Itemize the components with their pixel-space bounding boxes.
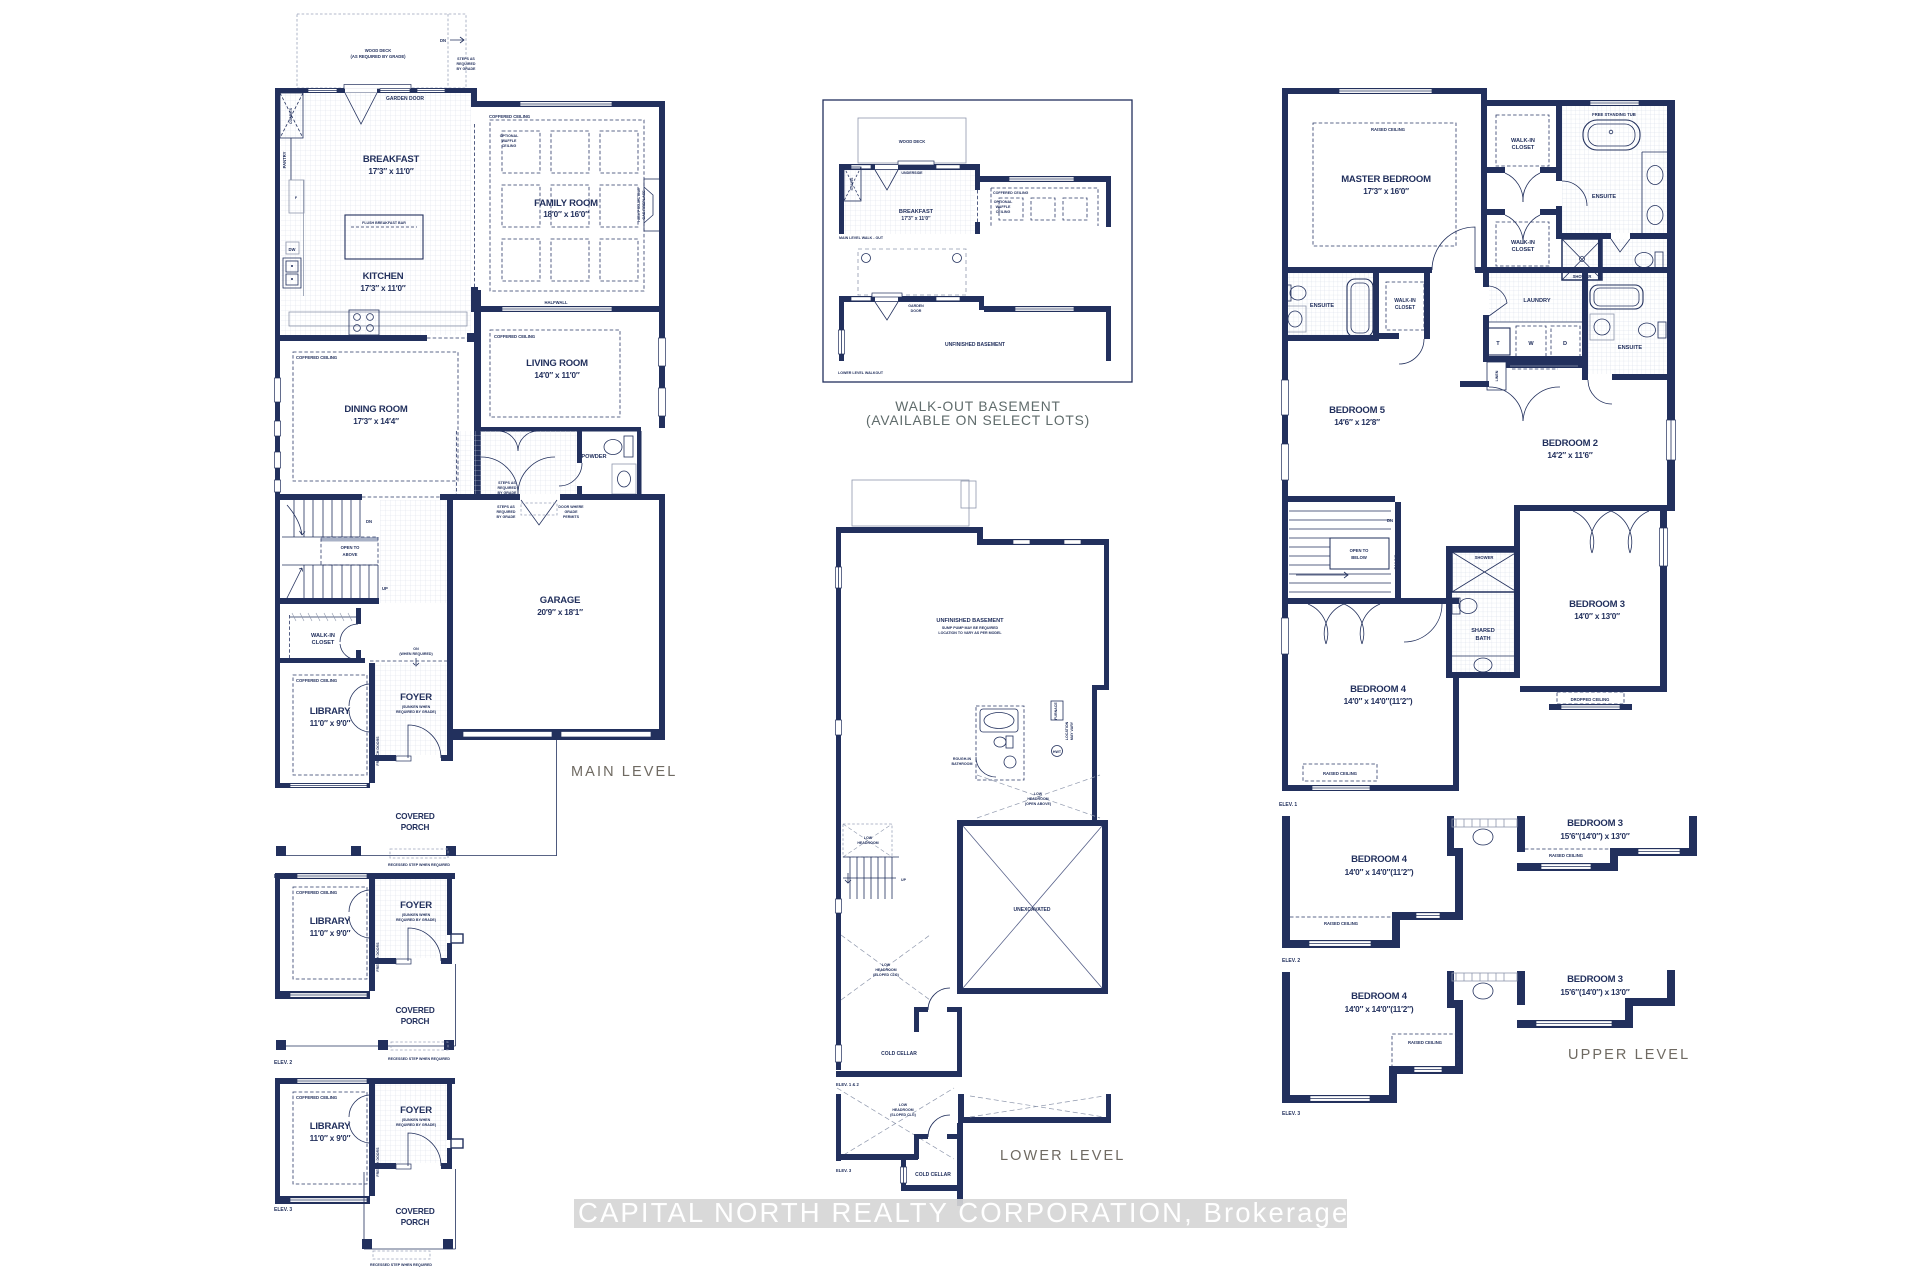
svg-text:GARDEN DOOR: GARDEN DOOR — [386, 96, 424, 102]
svg-text:COLD CELLAR: COLD CELLAR — [915, 1172, 951, 1178]
svg-text:RECESSED STEP WHEN REQUIRED: RECESSED STEP WHEN REQUIRED — [370, 1263, 432, 1267]
svg-text:COLD CELLAR: COLD CELLAR — [881, 1051, 917, 1057]
svg-text:COFFERED CEILING: COFFERED CEILING — [296, 1095, 337, 1100]
svg-text:UP: UP — [901, 878, 907, 882]
svg-text:UNFINISHED BASEMENT: UNFINISHED BASEMENT — [945, 342, 1005, 348]
svg-text:LOW: LOW — [882, 963, 891, 967]
svg-text:ENSUITE: ENSUITE — [1310, 303, 1335, 309]
svg-text:WALK-IN: WALK-IN — [311, 633, 335, 639]
svg-text:RECESSED STEP WHEN REQUIRED: RECESSED STEP WHEN REQUIRED — [388, 1057, 450, 1061]
svg-text:DW: DW — [289, 247, 296, 252]
svg-text:OPTIONAL: OPTIONAL — [500, 134, 519, 138]
svg-text:CLOSET: CLOSET — [1395, 305, 1415, 311]
svg-text:CLOSET: CLOSET — [312, 640, 335, 646]
svg-text:REQUIRED: REQUIRED — [498, 486, 517, 490]
svg-text:REQUIRED BY GRADE): REQUIRED BY GRADE) — [396, 710, 437, 714]
svg-text:PORCH: PORCH — [401, 1218, 430, 1227]
svg-text:(SLOPED CLG): (SLOPED CLG) — [873, 973, 900, 977]
svg-text:(WHEN REQUIRED): (WHEN REQUIRED) — [399, 652, 433, 656]
svg-text:FREE STANDING TUB: FREE STANDING TUB — [1592, 112, 1636, 117]
svg-text:HEADROOM: HEADROOM — [857, 841, 878, 845]
svg-text:BEDROOM 3: BEDROOM 3 — [1567, 818, 1623, 829]
svg-text:WALK-OUT BASEMENT: WALK-OUT BASEMENT — [895, 399, 1060, 414]
svg-text:W: W — [1528, 341, 1534, 347]
svg-text:LOCATION: LOCATION — [1065, 721, 1069, 740]
svg-text:17′3″ x 11′0″: 17′3″ x 11′0″ — [901, 216, 931, 222]
svg-text:15′6″(14′0″) x 13′0″: 15′6″(14′0″) x 13′0″ — [1560, 988, 1629, 997]
svg-text:(OPEN ABOVE): (OPEN ABOVE) — [1025, 802, 1052, 806]
svg-text:FLUSH BREAKFAST BAR: FLUSH BREAKFAST BAR — [362, 221, 406, 225]
svg-text:WOOD DECK: WOOD DECK — [899, 139, 926, 144]
svg-text:HALFWALL: HALFWALL — [544, 300, 567, 305]
svg-text:(AVAILABLE ON SELECT LOTS): (AVAILABLE ON SELECT LOTS) — [866, 413, 1090, 428]
svg-text:WALK-IN: WALK-IN — [1394, 298, 1416, 304]
svg-text:STEPS AS: STEPS AS — [497, 505, 515, 509]
svg-text:GRADE: GRADE — [565, 510, 579, 514]
svg-text:COVERED: COVERED — [395, 1207, 434, 1216]
svg-text:(SUNKEN WHEN: (SUNKEN WHEN — [402, 913, 431, 917]
svg-text:11′0″ x 9′0″: 11′0″ x 9′0″ — [310, 719, 351, 728]
svg-text:(SUNKEN WHEN: (SUNKEN WHEN — [402, 1118, 431, 1122]
svg-text:STEPS AS: STEPS AS — [498, 481, 516, 485]
svg-text:STEPS AS: STEPS AS — [457, 57, 475, 61]
svg-text:WALK-IN: WALK-IN — [1511, 138, 1535, 144]
svg-text:(AS REQUIRED BY GRADE): (AS REQUIRED BY GRADE) — [350, 54, 406, 59]
svg-text:UNFINISHED BASEMENT: UNFINISHED BASEMENT — [936, 618, 1004, 624]
svg-text:FOYER: FOYER — [400, 692, 432, 703]
svg-text:SUMP PUMP MAY BE REQUIRED: SUMP PUMP MAY BE REQUIRED — [942, 626, 999, 630]
svg-text:ELEV. 1 & 2: ELEV. 1 & 2 — [836, 1082, 860, 1087]
svg-text:BEDROOM 5: BEDROOM 5 — [1329, 405, 1386, 416]
svg-text:14′0″ x 14′0″(11′2″): 14′0″ x 14′0″(11′2″) — [1345, 868, 1414, 877]
svg-text:BEDROOM 4: BEDROOM 4 — [1351, 854, 1408, 865]
svg-text:HEADROOM: HEADROOM — [892, 1108, 913, 1112]
svg-text:ELEV. 3: ELEV. 3 — [836, 1168, 852, 1173]
svg-text:DN: DN — [1387, 518, 1393, 523]
svg-text:ELEV. 3: ELEV. 3 — [274, 1207, 292, 1213]
svg-text:17′3″ x 11′0″: 17′3″ x 11′0″ — [368, 167, 413, 176]
svg-text:OPEN TO: OPEN TO — [341, 545, 361, 550]
svg-text:OPEN TO: OPEN TO — [1350, 548, 1370, 553]
svg-text:14′6″ x 12′8″: 14′6″ x 12′8″ — [1334, 418, 1380, 427]
svg-text:17′3″ x 16′0″: 17′3″ x 16′0″ — [1363, 187, 1409, 196]
svg-text:LOWER LEVEL: LOWER LEVEL — [1000, 1148, 1125, 1164]
svg-text:REQUIRED BY GRADE): REQUIRED BY GRADE) — [396, 918, 437, 922]
svg-text:RAISED CEILING: RAISED CEILING — [1408, 1040, 1442, 1045]
svg-text:LINEN: LINEN — [1495, 370, 1499, 381]
svg-text:FAMILY ROOM: FAMILY ROOM — [534, 198, 598, 209]
svg-text:RAISED CEILING: RAISED CEILING — [1323, 771, 1357, 776]
svg-text:BATHROOM: BATHROOM — [952, 762, 973, 766]
svg-text:RAISED CEILING: RAISED CEILING — [1324, 921, 1358, 926]
svg-text:ELEV. 1: ELEV. 1 — [1279, 802, 1297, 808]
svg-text:PANTRY: PANTRY — [839, 211, 843, 226]
svg-text:RECESSED STEP WHEN REQUIRED: RECESSED STEP WHEN REQUIRED — [388, 863, 450, 867]
svg-text:UNDERSIDE: UNDERSIDE — [901, 171, 923, 175]
svg-text:SHARED: SHARED — [1471, 628, 1495, 634]
svg-text:REQUIRED: REQUIRED — [457, 62, 476, 66]
svg-text:POWDER: POWDER — [581, 454, 606, 460]
svg-text:UNEXCAVATED: UNEXCAVATED — [1014, 907, 1051, 913]
svg-text:COVERED: COVERED — [395, 1006, 434, 1015]
svg-text:DOOR: DOOR — [911, 309, 922, 313]
svg-text:LIBRARY: LIBRARY — [310, 1121, 351, 1132]
svg-text:14′0″ x 11′0″: 14′0″ x 11′0″ — [534, 371, 579, 380]
svg-text:DINING ROOM: DINING ROOM — [344, 404, 408, 415]
svg-text:HEADROOM: HEADROOM — [875, 968, 896, 972]
svg-text:ENSUITE: ENSUITE — [1618, 345, 1643, 351]
svg-text:CEILING: CEILING — [996, 210, 1011, 214]
svg-text:BY GRADE: BY GRADE — [457, 67, 477, 71]
svg-text:COFFERED CEILING: COFFERED CEILING — [494, 334, 535, 339]
svg-text:COFFERED CEILING: COFFERED CEILING — [296, 678, 337, 683]
svg-text:WAFFLE: WAFFLE — [502, 139, 517, 143]
svg-text:ON: ON — [413, 647, 419, 651]
svg-text:GARDEN: GARDEN — [908, 304, 924, 308]
svg-text:ABOVE: ABOVE — [343, 552, 358, 557]
svg-text:LOW: LOW — [864, 836, 873, 840]
svg-text:BREAKFAST: BREAKFAST — [363, 154, 420, 165]
svg-text:COFFERED CEILING: COFFERED CEILING — [296, 890, 337, 895]
svg-text:(SLOPED CLG): (SLOPED CLG) — [890, 1113, 917, 1117]
svg-text:RAISED CEILING: RAISED CEILING — [1549, 853, 1583, 858]
svg-text:LOWER LEVEL WALKOUT: LOWER LEVEL WALKOUT — [838, 371, 884, 375]
svg-text:WAFFLE: WAFFLE — [996, 205, 1011, 209]
svg-text:MAIN LEVEL WALK - OUT: MAIN LEVEL WALK - OUT — [839, 236, 884, 240]
svg-text:COFFERED CEILING: COFFERED CEILING — [296, 355, 337, 360]
svg-text:MAIN LEVEL: MAIN LEVEL — [571, 764, 677, 780]
svg-text:UPPER LEVEL: UPPER LEVEL — [1568, 1047, 1690, 1063]
svg-text:17′3″ x 11′0″: 17′3″ x 11′0″ — [360, 284, 405, 293]
svg-text:11′0″ x 9′0″: 11′0″ x 9′0″ — [310, 929, 351, 938]
svg-text:LAUNDRY: LAUNDRY — [1523, 298, 1550, 304]
svg-text:14′0″ x 13′0″: 14′0″ x 13′0″ — [1574, 612, 1620, 621]
svg-text:DROPPED CEILING: DROPPED CEILING — [1571, 697, 1610, 702]
svg-text:OPTIONAL: OPTIONAL — [994, 200, 1013, 204]
svg-text:BEDROOM 3: BEDROOM 3 — [1567, 974, 1623, 985]
svg-text:LOCATION TO VARY AS PER MODEL: LOCATION TO VARY AS PER MODEL — [938, 631, 1002, 635]
svg-text:20′9″ x 18′1″: 20′9″ x 18′1″ — [537, 608, 583, 617]
svg-text:18′0″ x 16′0″: 18′0″ x 16′0″ — [543, 210, 589, 219]
svg-text:COVERED: COVERED — [395, 812, 434, 821]
svg-text:GARAGE: GARAGE — [540, 595, 581, 606]
svg-text:DOOR WHERE: DOOR WHERE — [558, 505, 584, 509]
svg-text:11′0″ x 9′0″: 11′0″ x 9′0″ — [310, 1134, 351, 1143]
svg-text:ELEV. 2: ELEV. 2 — [1282, 958, 1300, 964]
svg-text:T: T — [1496, 341, 1500, 347]
svg-text:HEADROOM: HEADROOM — [1027, 797, 1048, 801]
svg-text:MASTER BEDROOM: MASTER BEDROOM — [1341, 174, 1431, 185]
svg-text:14′2″ x 11′6″: 14′2″ x 11′6″ — [1547, 451, 1592, 460]
svg-text:SHOWER: SHOWER — [1475, 555, 1494, 560]
svg-text:BEDROOM 2: BEDROOM 2 — [1542, 438, 1598, 449]
svg-text:WOOD DECK: WOOD DECK — [365, 48, 392, 53]
svg-text:CUBBIES: CUBBIES — [289, 107, 293, 124]
svg-text:RAISED CEILING: RAISED CEILING — [1371, 127, 1405, 132]
svg-text:FOYER: FOYER — [400, 900, 432, 911]
svg-text:BELOW: BELOW — [1351, 555, 1367, 560]
svg-text:ENSUITE: ENSUITE — [1592, 194, 1617, 200]
svg-text:ELEV. 3: ELEV. 3 — [1282, 1111, 1300, 1117]
svg-text:PERMITS: PERMITS — [563, 515, 580, 519]
svg-text:BEDROOM 3: BEDROOM 3 — [1569, 599, 1625, 610]
svg-text:ROUGH-IN: ROUGH-IN — [953, 757, 972, 761]
svg-text:FOYER: FOYER — [400, 1105, 432, 1116]
svg-text:UP: UP — [382, 586, 388, 591]
svg-text:BEDROOM 4: BEDROOM 4 — [1351, 991, 1408, 1002]
svg-text:HWT: HWT — [1053, 750, 1062, 754]
svg-text:D: D — [1563, 341, 1567, 347]
svg-text:KITCHEN: KITCHEN — [363, 271, 404, 282]
svg-text:STAIRS: STAIRS — [850, 177, 854, 191]
svg-text:BY GRADE: BY GRADE — [497, 515, 517, 519]
svg-text:ELEV. 2: ELEV. 2 — [274, 1060, 292, 1066]
svg-text:(SUNKEN WHEN: (SUNKEN WHEN — [402, 705, 431, 709]
svg-text:LOW: LOW — [899, 1103, 908, 1107]
svg-text:17′3″ x 14′4″: 17′3″ x 14′4″ — [353, 417, 399, 426]
svg-text:14′0″ x 14′0″(11′2″): 14′0″ x 14′0″(11′2″) — [1344, 697, 1413, 706]
svg-text:DN: DN — [366, 519, 372, 524]
svg-text:WALK-IN: WALK-IN — [1511, 240, 1535, 246]
svg-text:BREAKFAST: BREAKFAST — [899, 209, 934, 215]
svg-text:CAPITAL NORTH REALTY CORPORATI: CAPITAL NORTH REALTY CORPORATION, Broker… — [578, 1197, 1349, 1228]
svg-text:FURNACE: FURNACE — [1054, 702, 1058, 720]
svg-text:LIBRARY: LIBRARY — [310, 706, 351, 717]
svg-text:REQUIRED BY GRADE): REQUIRED BY GRADE) — [396, 1123, 437, 1127]
svg-text:COFFERED CEILING: COFFERED CEILING — [489, 114, 530, 119]
svg-text:DN: DN — [440, 38, 446, 43]
svg-text:CEILING: CEILING — [502, 144, 517, 148]
svg-text:CLOSET: CLOSET — [1512, 145, 1535, 151]
svg-text:CLOSET: CLOSET — [1512, 247, 1535, 253]
svg-text:BEDROOM 4: BEDROOM 4 — [1350, 684, 1407, 695]
svg-text:REQUIRED: REQUIRED — [497, 510, 516, 514]
svg-text:PANTRY: PANTRY — [282, 151, 287, 168]
svg-text:LIBRARY: LIBRARY — [310, 916, 351, 927]
svg-text:LOW: LOW — [1034, 792, 1043, 796]
svg-text:LIVING ROOM: LIVING ROOM — [526, 358, 588, 369]
svg-text:MAY VARY: MAY VARY — [1070, 721, 1074, 740]
svg-text:PORCH: PORCH — [401, 823, 430, 832]
svg-text:BATH: BATH — [1475, 636, 1490, 642]
svg-text:PORCH: PORCH — [401, 1017, 430, 1026]
svg-text:15′6″(14′0″) x 13′0″: 15′6″(14′0″) x 13′0″ — [1560, 832, 1629, 841]
svg-text:COFFERED CEILING: COFFERED CEILING — [993, 191, 1029, 195]
svg-text:14′0″ x 14′0″(11′2″): 14′0″ x 14′0″(11′2″) — [1345, 1005, 1414, 1014]
